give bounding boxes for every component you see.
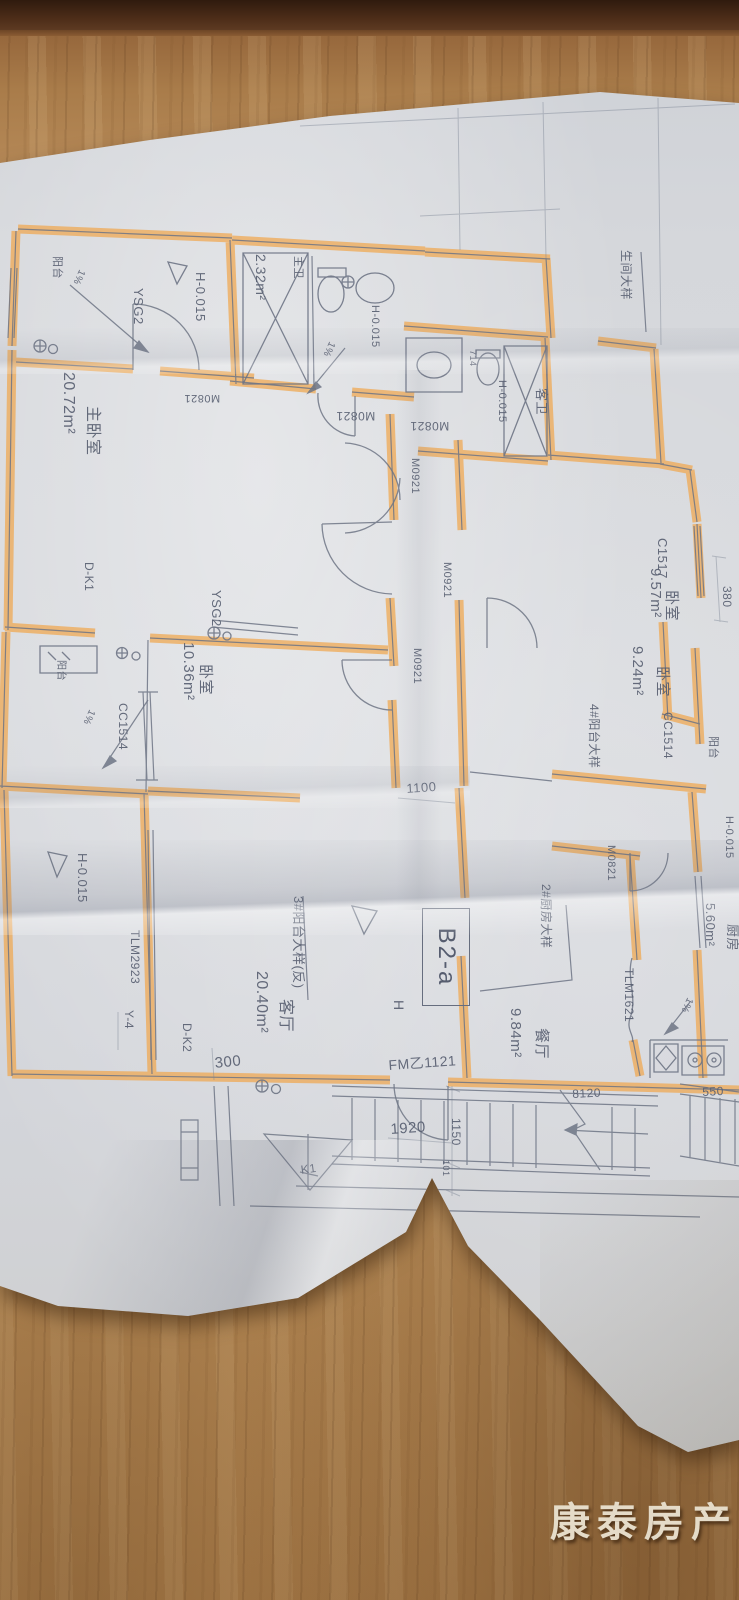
washing-machine-icon — [40, 646, 97, 673]
room-area-living: 20.40m² — [253, 971, 269, 1033]
window-code-cc1514: CC1514 — [117, 703, 129, 750]
balcony-label: 阳台 — [707, 736, 718, 759]
dimension-label: 1100 — [406, 780, 437, 795]
detail-note-bathroom: 生间大样 — [620, 250, 632, 300]
hole-code-dk1: D-K1 — [83, 562, 95, 591]
hole-code-y4: Y-4 — [123, 1010, 135, 1029]
level-label: H-0.015 — [194, 272, 207, 322]
room-area-dining: 9.84m² — [508, 1008, 523, 1058]
door-code-m0821: M0821 — [336, 410, 375, 422]
door-code-m0921: M0921 — [441, 562, 452, 598]
door-code-m0821: M0821 — [605, 845, 616, 881]
window-code-ysg2: YSG2 — [132, 288, 145, 325]
room-label-living: 客厅 — [277, 999, 293, 1032]
toilet-tank — [476, 350, 500, 358]
hole-code-dk2: D-K2 — [181, 1023, 193, 1052]
sink-icon — [417, 352, 451, 378]
room-label-dining: 餐厅 — [534, 1028, 549, 1059]
room-label-bedroom: 卧室 — [198, 664, 213, 695]
window-lines — [8, 268, 706, 1060]
window-code-cc1514: CC1514 — [662, 712, 674, 759]
room-label-bedroom: 卧室 — [655, 666, 670, 697]
dimension-label: 8120 — [572, 1086, 601, 1099]
dimension-label: 550 — [702, 1085, 724, 1098]
guest-bath-label: 客卫 — [535, 388, 548, 415]
room-area-master-bedroom: 20.72m² — [60, 372, 76, 434]
detail-note-balcony3: 3#阳台大样(反) — [292, 896, 305, 989]
unit-code-box: B2-a — [422, 908, 470, 1006]
counter-guest-bath — [406, 338, 462, 392]
room-area-bedroom: 9.24m² — [630, 646, 645, 696]
level-label: H-0.015 — [369, 305, 380, 348]
dimension-label: 101 — [441, 1160, 450, 1177]
door-code-tlm1621: TLM1621 — [623, 968, 635, 1022]
door-code-tlm2923: TLM2923 — [129, 930, 141, 984]
room-label-kitchen: 厨房 — [726, 924, 739, 951]
door-code-m0821: M0821 — [410, 420, 449, 432]
room-area-bedroom: 10.36m² — [181, 642, 196, 701]
kitchen-sink-icon — [654, 1044, 678, 1072]
floorplan-paper: 阳台 1% YSG2 H-0.015 主卫 2.32m² H-0.015 1% … — [0, 0, 739, 1600]
dimension-label: 1150 — [450, 1118, 462, 1146]
balcony-label: 阳台 — [51, 256, 62, 279]
room-area-kitchen: 5.60m² — [704, 903, 717, 946]
unit-code-label: B2-a — [432, 928, 460, 987]
dimension-label: 300 — [214, 1053, 242, 1071]
room-label-master-bedroom: 主卧室 — [84, 406, 100, 456]
door-code-m0821: M0821 — [184, 392, 220, 403]
toilet-icon — [318, 276, 344, 312]
pencil-wall-lines — [0, 229, 739, 1217]
sink-icon — [356, 273, 394, 303]
floorplan-drawing — [0, 0, 739, 1600]
door-code-m0921: M0921 — [411, 648, 422, 684]
photo-of-floorplan: 阳台 1% YSG2 H-0.015 主卫 2.32m² H-0.015 1% … — [0, 0, 739, 1600]
door-code-m0921: M0921 — [409, 458, 420, 494]
detail-note-kitchen2: 2#厨房大样 — [540, 884, 552, 948]
level-label: H-0.015 — [496, 380, 507, 423]
shaft-label-k1: K1 — [300, 1162, 317, 1176]
h-mark-label: H — [392, 1000, 406, 1011]
balcony-label: 阳台 — [55, 660, 65, 681]
dimension-label: 1920 — [390, 1120, 426, 1137]
paper-wrapper: 阳台 1% YSG2 H-0.015 主卫 2.32m² H-0.015 1% … — [0, 0, 739, 1600]
room-label-bedroom: 卧室 — [664, 590, 679, 621]
room-area-bedroom: 9.57m² — [648, 568, 663, 618]
window-code-ysg2: YSG2 — [210, 590, 223, 627]
watermark: 康泰房产 — [550, 1490, 738, 1548]
master-bath-label: 主卫 — [292, 256, 303, 279]
dimension-label: 380 — [721, 586, 733, 608]
dimension-label: 714 — [468, 350, 477, 367]
level-label: H-0.015 — [723, 816, 734, 859]
master-bath-area: 2.32m² — [254, 254, 268, 301]
level-label: H-0.015 — [76, 853, 89, 903]
detail-note-balcony4: 4#阳台大样 — [588, 704, 600, 768]
